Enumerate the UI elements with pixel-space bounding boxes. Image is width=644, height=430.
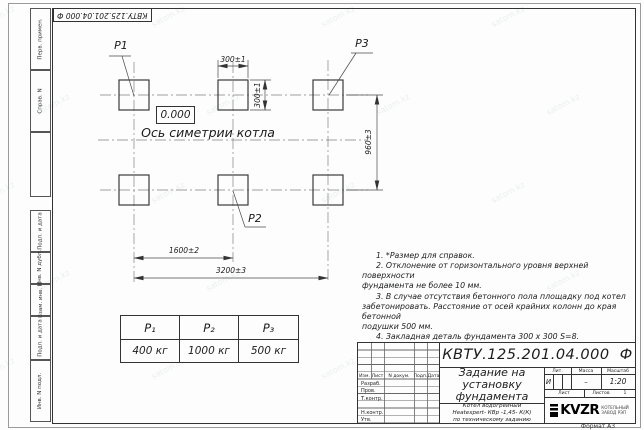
sheets-value: 1 [618, 390, 632, 397]
top-doc-number-box: КВТУ.125.201.04.000 Ф [53, 8, 152, 22]
dim-label-col-spacing: 1600±2 [154, 244, 214, 256]
strip-cell-empty [30, 132, 51, 197]
title-block-revision-grid: Изм. Лист N докум. Подп. Дата Разраб. Пр… [358, 343, 440, 423]
dim-label-total-width: 3200±3 [201, 264, 261, 276]
title-block-product: Котел водогрейный Heatexpert- КВр -1,45-… [440, 403, 544, 423]
load-table-value-p1: 400 кг [121, 340, 180, 362]
logo-text: KVZR [560, 402, 599, 418]
pad-label-p3: P3 [349, 36, 375, 50]
sheets-label: Листов [584, 390, 618, 397]
logo-bars-icon [550, 404, 558, 417]
load-table: P₁ P₂ P₃ 400 кг 1000 кг 500 кг [120, 315, 299, 363]
strip-cell-inv-dubl: Инв. N дубл. [30, 252, 51, 284]
role-prov: Пров. [359, 388, 385, 395]
drawing-sheet: satom.kzsatom.kzsatom.kzsatom.kzsatom.kz… [0, 0, 644, 430]
strip-cell-podp-data-2: Подп. и дата [30, 316, 51, 360]
strip-label: Взам. инв. N [38, 282, 44, 318]
elevation-mark: 0.000 [156, 106, 195, 124]
role-nkontr: Н.контр. [359, 409, 385, 416]
strip-label: Перв. примен. [38, 18, 44, 59]
strip-cell-inv-podl: Инв. N подл. [30, 360, 51, 422]
scale-value: 1:20 [601, 374, 635, 389]
strip-label: Инв. N подл. [38, 373, 44, 409]
symmetry-axis-label: Ось симетрии котла [144, 124, 272, 140]
load-table-value-p3: 500 кг [239, 340, 298, 362]
dim-label-pad-height: 300±1 [251, 75, 263, 115]
format-note: Формат А3 [560, 423, 636, 430]
strip-label: Подп. и дата [38, 319, 44, 356]
strip-label: Подп. и дата [38, 212, 44, 249]
pad-label-p1: P1 [108, 38, 134, 52]
strip-label: Справ. N [38, 88, 44, 113]
load-table-header-p3: P₃ [239, 316, 298, 340]
rev-header-list: Лист [371, 373, 384, 379]
tb-line [440, 403, 544, 404]
load-table-header-p1: P₁ [121, 316, 180, 340]
rev-header-dokum: N докум. [384, 373, 414, 379]
lit-value: И [544, 374, 553, 389]
load-table-value-p2: 1000 кг [180, 340, 239, 362]
note-3: 3. В случае отсутствия бетонного пола пл… [362, 292, 634, 333]
title-block-title: Задание на установку фундамента [440, 367, 544, 403]
top-doc-number: КВТУ.125.201.04.000 Ф [57, 11, 148, 20]
title-block: Изм. Лист N докум. Подп. Дата Разраб. Пр… [357, 342, 636, 424]
strip-cell-perv-primen: Перв. примен. [30, 8, 51, 70]
strip-cell-vzam-inv: Взам. инв. N [30, 284, 51, 316]
role-razrab: Разраб. [359, 381, 385, 388]
strip-label: Инв. N дубл. [38, 250, 44, 286]
role-tkontr: Т.контр. [359, 395, 385, 402]
strip-cell-podp-data-1: Подп. и дата [30, 210, 51, 252]
role-utv: Утв. [359, 416, 385, 423]
note-2: 2. Отклонение от горизонтального уровня … [362, 261, 634, 291]
load-table-header-p2: P₂ [180, 316, 239, 340]
company-logo: KVZR КОТЕЛЬНЫЙ ЗАВОД РЭП [544, 397, 635, 423]
note-1: 1. *Размер для справок. [362, 251, 634, 261]
pad-label-p2: P2 [242, 211, 268, 225]
title-block-doc-number: КВТУ.125.201.04.000 Ф [440, 343, 635, 367]
tb-line [562, 374, 563, 389]
rev-header-podp: Подп. [414, 373, 427, 379]
dim-label-pad-width: 300±1 [213, 53, 253, 65]
logo-caption: КОТЕЛЬНЫЙ ЗАВОД РЭП [601, 405, 628, 415]
rev-header-izm: Изм. [358, 373, 371, 379]
note-4: 4. Закладная деталь фундамента 300 x 300… [362, 332, 634, 342]
rev-header-data: Дата [427, 373, 440, 379]
strip-cell-sprav-n: Справ. N [30, 70, 51, 132]
tb-line [553, 374, 554, 389]
dim-label-row-spacing: 960±3 [362, 122, 374, 162]
sheet-label: Лист [544, 390, 584, 397]
mass-value: – [571, 374, 601, 389]
